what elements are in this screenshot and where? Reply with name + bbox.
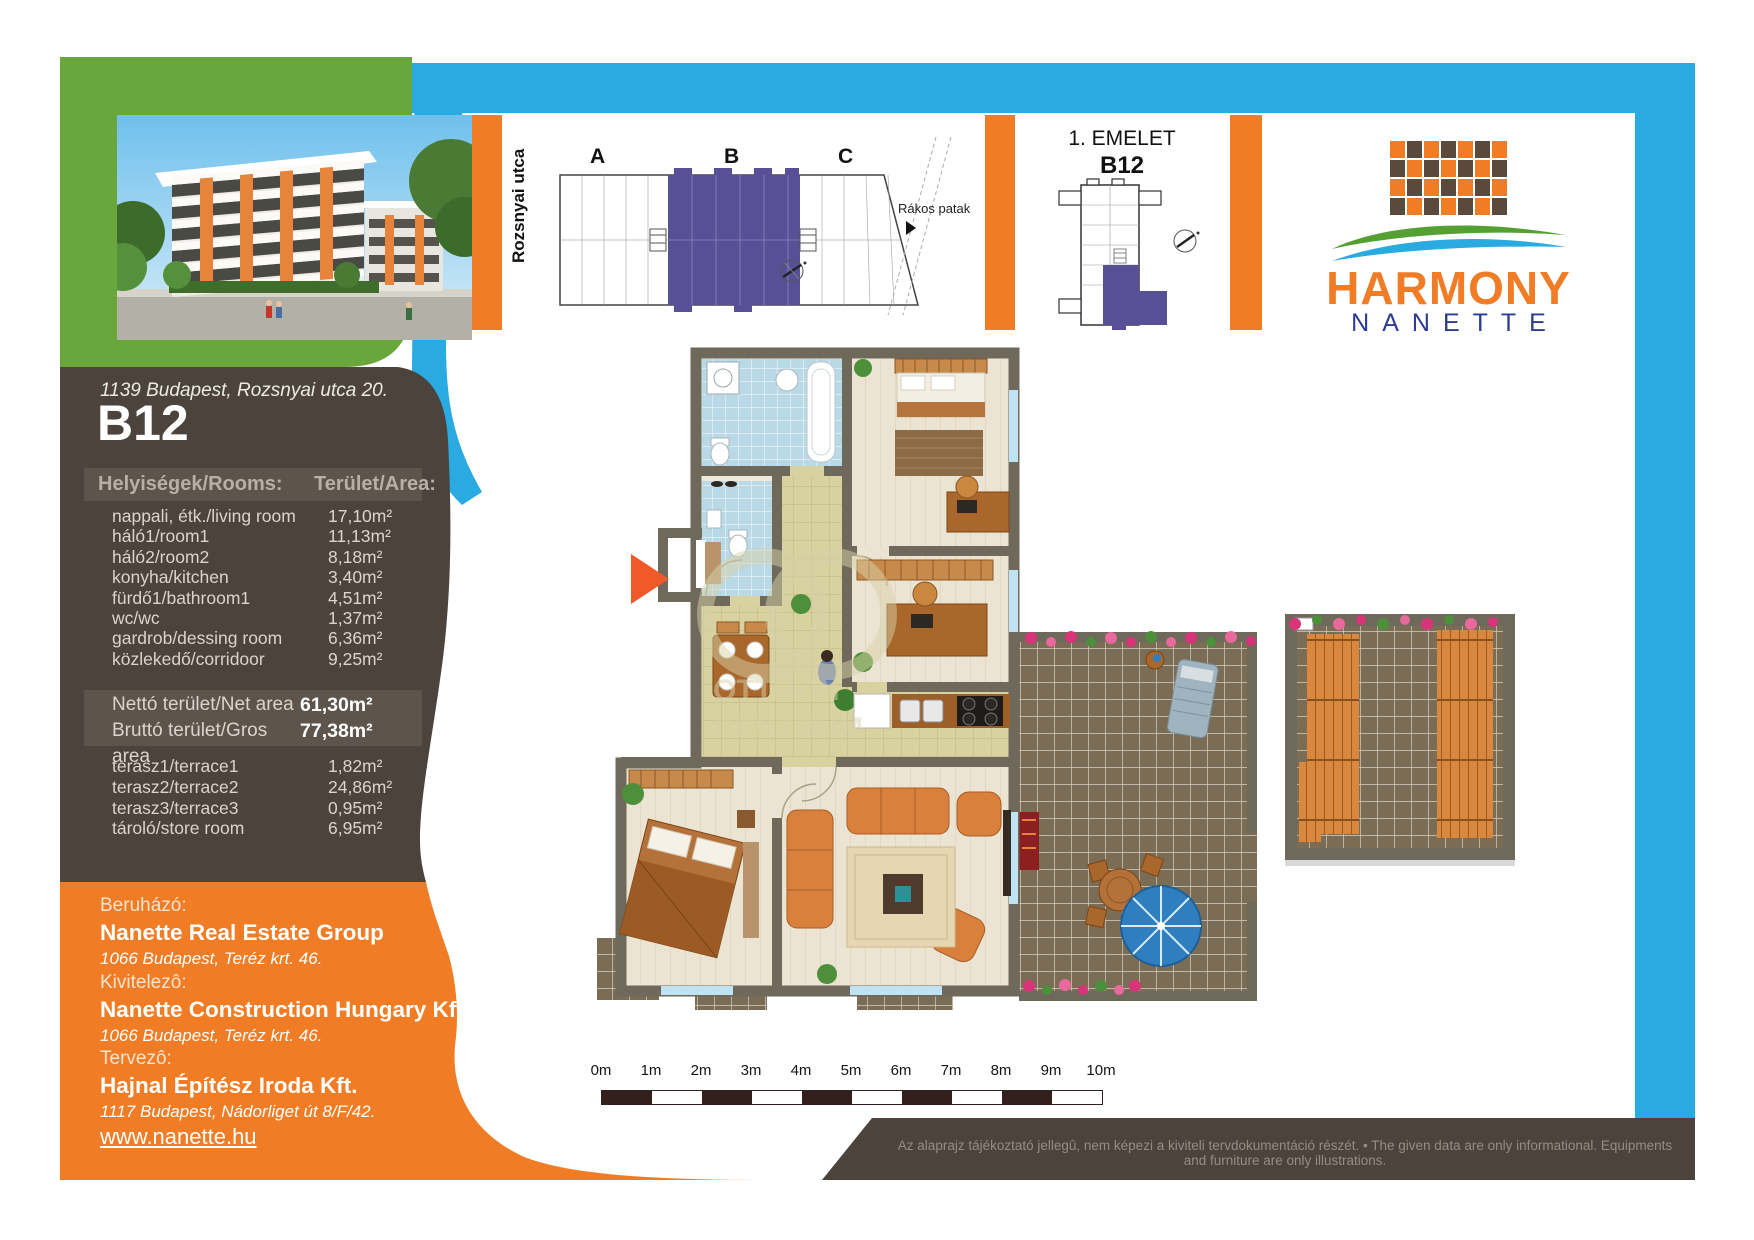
building-photo <box>117 115 472 340</box>
kitchen <box>854 694 1010 728</box>
blue-top-bar <box>400 63 1695 113</box>
scale-bar <box>601 1090 1103 1105</box>
scale-labels: 0m 1m 2m 3m 4m 5m 6m 7m 8m 9m 10m <box>576 1062 1126 1079</box>
rug <box>743 842 759 938</box>
disclaimer-text: Az alaprajz tájékoztató jellegû, nem kép… <box>890 1138 1680 1168</box>
stream-arrow-icon <box>906 221 916 235</box>
table-row: közlekedő/corridoor9,25m² <box>112 649 422 669</box>
road <box>117 295 472 340</box>
logo-title: HARMONY <box>1262 261 1635 315</box>
street-label: Rozsnyai utca <box>509 148 528 263</box>
rooms-table: nappali, étk./living room17,10m² háló1/r… <box>112 506 422 669</box>
table-row: gardrob/dessing room6,36m² <box>112 628 422 648</box>
table-row: terasz3/terrace30,95m² <box>112 798 422 819</box>
wardrobe <box>629 770 733 788</box>
section-b-highlight <box>668 168 800 312</box>
desk <box>947 492 1009 532</box>
website-link[interactable]: www.nanette.hu <box>100 1124 257 1150</box>
logo-panel: HARMONY NANETTE <box>1262 113 1635 330</box>
col-rooms: Helyiségek/Rooms: <box>98 468 283 501</box>
table-header: Helyiségek/Rooms: Terület/Area: <box>84 468 422 501</box>
section-a-label: A <box>590 145 605 168</box>
table-row: terasz2/terrace224,86m² <box>112 777 422 798</box>
section-b-label: B <box>724 145 739 168</box>
floor-plan: OTTHON CENTRUM <box>595 342 1520 1012</box>
parasol-icon <box>1121 886 1201 966</box>
plant <box>854 359 872 377</box>
floor-unit: B12 <box>1100 152 1144 179</box>
svg-text:CENTRUM: CENTRUM <box>713 712 863 745</box>
extras-table: terasz1/terrace11,82m² terasz2/terrace22… <box>112 756 422 839</box>
sofa <box>787 810 833 928</box>
table-row: konyha/kitchen3,40m² <box>112 567 422 587</box>
table-row: fürdő1/bathroom14,51m² <box>112 588 422 608</box>
terrace <box>1019 632 1257 1001</box>
floor-locator: 1. EMELET B12 <box>1017 113 1228 330</box>
nightstand <box>737 810 755 828</box>
table-row: terasz1/terrace11,82m² <box>112 756 422 777</box>
sofa <box>847 788 949 834</box>
developer-block: Beruházó: Nanette Real Estate Group 1066… <box>100 895 440 969</box>
table-row: wc/wc1,37m² <box>112 608 422 628</box>
logo-building-icon <box>1390 141 1507 215</box>
plant <box>817 964 837 984</box>
architect-block: Tervezô: Hajnal Építész Iroda Kft. 1117 … <box>100 1048 440 1122</box>
sink <box>900 700 920 722</box>
rug <box>895 430 983 476</box>
section-c-label: C <box>838 145 853 168</box>
stream-label: Rákos patak <box>898 201 971 216</box>
divider-strip-2 <box>985 115 1015 330</box>
logo-subtitle: NANETTE <box>1262 309 1635 338</box>
brochure-page: Rozsnyai utca A B C <box>0 0 1754 1240</box>
logo-waves-icon <box>1324 221 1574 263</box>
plant <box>791 594 811 614</box>
contractor-block: Kivitelezô: Nanette Construction Hungary… <box>100 972 440 1046</box>
table-row: tároló/store room6,95m² <box>112 818 422 839</box>
crate <box>1437 630 1493 838</box>
table-row: háló1/room111,13m² <box>112 526 422 546</box>
plant <box>622 783 644 805</box>
floor-title: 1. EMELET <box>1068 127 1176 150</box>
table-row: nappali, étk./living room17,10m² <box>112 506 422 526</box>
net-area-row: Nettó terület/Net area 61,30m² <box>84 690 422 718</box>
blue-right-bar <box>1635 63 1695 1118</box>
desk <box>887 604 987 656</box>
svg-text:OTTHON: OTTHON <box>713 674 840 707</box>
mini-building <box>1059 179 1167 330</box>
unit-highlight <box>1103 265 1167 325</box>
chair <box>913 582 937 606</box>
tv-console <box>1003 810 1011 896</box>
unit-id: B12 <box>97 398 189 448</box>
store-room <box>1285 614 1515 866</box>
table-row: háló2/room28,18m² <box>112 547 422 567</box>
totals-band: Nettó terület/Net area 61,30m² Bruttó te… <box>84 690 422 746</box>
site-plan: Rozsnyai utca A B C <box>502 113 985 330</box>
divider-strip-1 <box>472 115 502 330</box>
gross-area-row: Bruttó terület/Gros area 77,38m² <box>84 718 422 744</box>
col-area: Terület/Area: <box>314 468 436 501</box>
divider-strip-3 <box>1230 115 1262 330</box>
grill <box>1019 812 1039 870</box>
crate <box>1299 762 1321 842</box>
armchair <box>957 792 1001 836</box>
compass-icon <box>1174 230 1200 252</box>
chair <box>956 476 978 498</box>
